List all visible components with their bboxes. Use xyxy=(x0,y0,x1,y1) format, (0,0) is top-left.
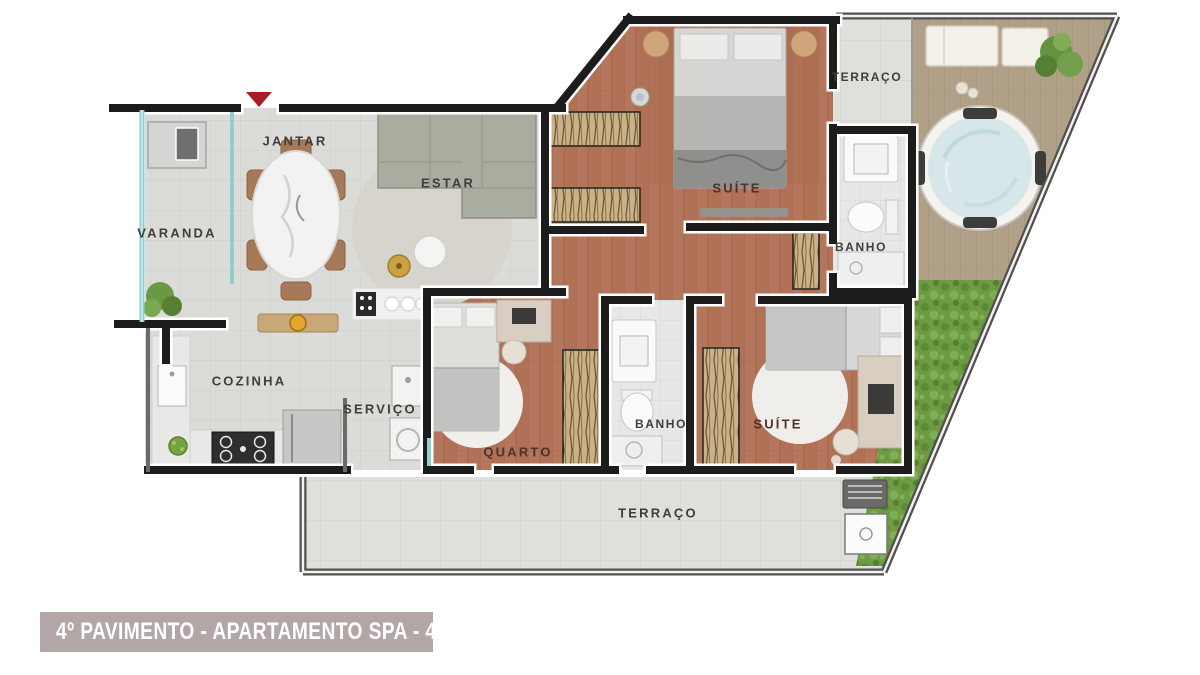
caption-bar: 4º PAVIMENTO - APARTAMENTO SPA - 402 xyxy=(40,612,433,652)
kitchen-plant xyxy=(169,437,187,455)
terraco-bottom-floor xyxy=(303,477,908,570)
floor-plan-drawing xyxy=(0,0,1200,675)
varanda-cabinet xyxy=(148,122,206,168)
caption-text: 4º PAVIMENTO - APARTAMENTO SPA - 402 xyxy=(56,618,459,646)
suite2-wardrobe xyxy=(703,348,739,466)
quarto-wardrobe xyxy=(563,350,603,468)
entry-arrow-icon xyxy=(246,92,272,107)
terrace-equipment xyxy=(843,480,887,554)
floor-plan-page: VARANDA JANTAR ESTAR COZINHA SERVIÇO QUA… xyxy=(0,0,1200,675)
terraco-top-floor xyxy=(833,18,912,130)
